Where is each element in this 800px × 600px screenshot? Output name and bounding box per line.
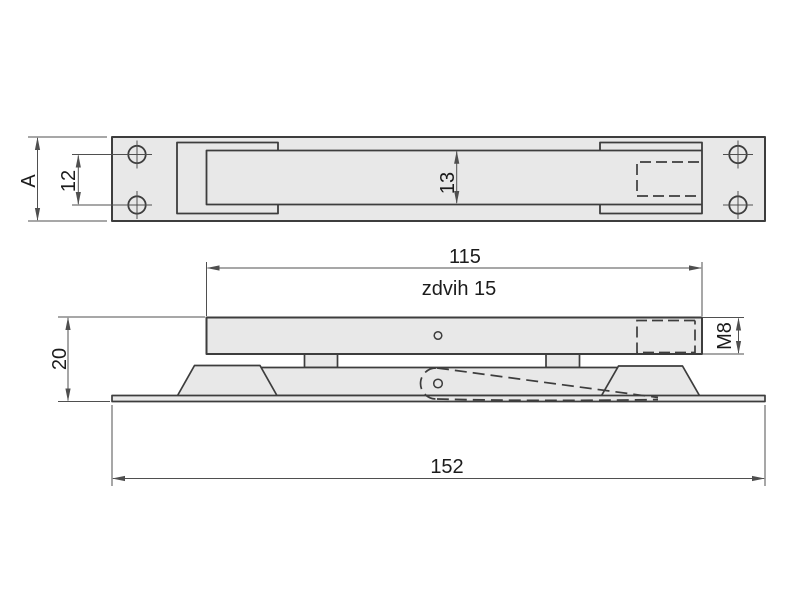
top-view: A 12 13 bbox=[18, 137, 765, 221]
side-view-guide-nub-left bbox=[305, 354, 338, 368]
dimension-M8: M8 bbox=[703, 318, 744, 355]
side-view: 115 zdvih 15 M8 20 152 bbox=[49, 246, 765, 486]
side-view-guide-left bbox=[177, 366, 278, 397]
dim-label-A: A bbox=[18, 174, 40, 188]
technical-drawing-page: A 12 13 bbox=[0, 0, 800, 600]
dimension-12: 12 bbox=[58, 155, 81, 206]
side-view-lever-housing bbox=[230, 368, 650, 396]
side-view-slider-bar bbox=[207, 318, 703, 355]
dimension-152: 152 bbox=[112, 405, 765, 486]
dim-label-M8: M8 bbox=[714, 322, 736, 350]
side-view-guide-nub-right bbox=[546, 354, 580, 368]
dim-label-115: 115 bbox=[449, 246, 481, 268]
stroke-label: zdvih 15 bbox=[422, 278, 497, 300]
dim-label-12: 12 bbox=[58, 170, 80, 192]
dim-label-20: 20 bbox=[49, 348, 71, 370]
dim-label-152: 152 bbox=[430, 456, 463, 478]
dimension-115: 115 zdvih 15 bbox=[207, 246, 703, 316]
technical-drawing-canvas: A 12 13 bbox=[0, 0, 800, 600]
dim-label-13: 13 bbox=[437, 172, 459, 194]
